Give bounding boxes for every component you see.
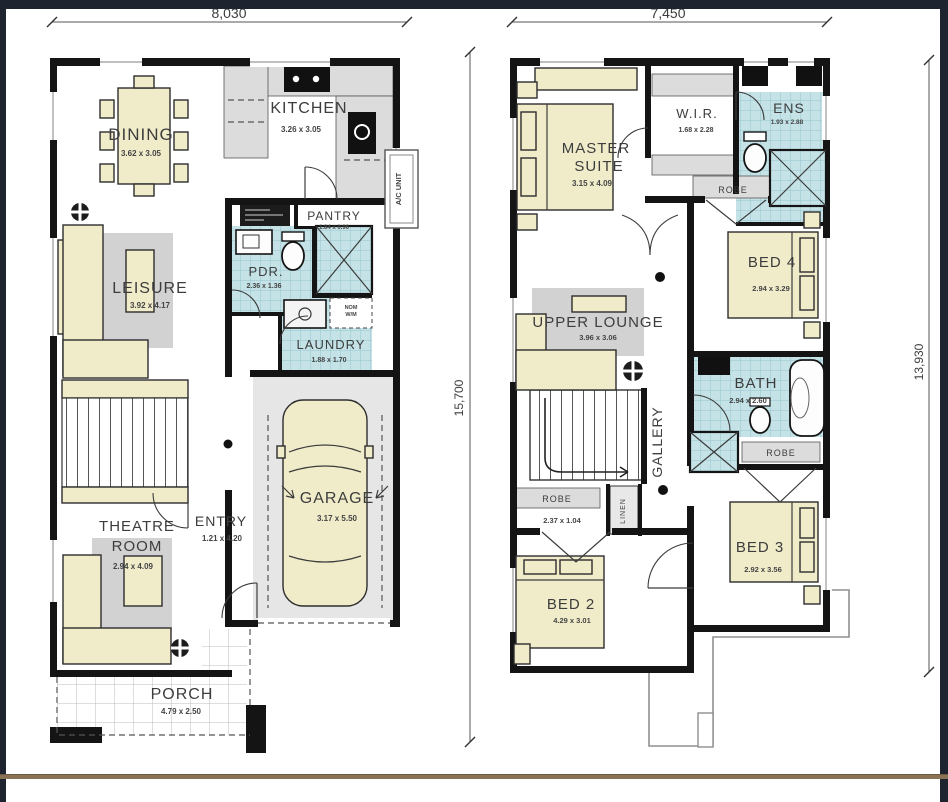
leisure-label: LEISURE bbox=[112, 280, 187, 297]
bath-label: BATH bbox=[735, 375, 778, 392]
linen-label: LINEN bbox=[620, 498, 627, 524]
first-floor-plan: 7,450 15,700 13,930 MASTER SUITE 3.15 x … bbox=[452, 5, 934, 747]
floorplan-page: A/C UNIT 8,030 DINING 3.62 x 3.05 KITCHE… bbox=[0, 0, 948, 802]
dining-label: DINING bbox=[108, 125, 174, 144]
entry-label: ENTRY bbox=[195, 513, 247, 529]
robe-bed3-label: ROBE bbox=[766, 448, 796, 458]
kitchen-label: KITCHEN bbox=[270, 100, 347, 117]
wir-label: W.I.R. bbox=[676, 106, 717, 121]
bed3-dim: 2.92 x 3.56 bbox=[744, 565, 782, 574]
pdr-dim: 2.36 x 1.36 bbox=[246, 283, 281, 290]
master-dresser bbox=[535, 68, 637, 90]
master-dim: 3.15 x 4.09 bbox=[572, 179, 613, 188]
ground-floor-plan: A/C UNIT 8,030 DINING 3.62 x 3.05 KITCHE… bbox=[47, 5, 418, 753]
hall-shelf bbox=[652, 155, 736, 175]
ac-unit: A/C UNIT bbox=[385, 150, 418, 228]
bed3-label: BED 3 bbox=[736, 539, 784, 556]
porch-label: PORCH bbox=[151, 686, 214, 703]
ens-label: ENS bbox=[773, 100, 805, 116]
robe-hall-label: ROBE bbox=[542, 494, 572, 504]
fan-icon bbox=[171, 639, 189, 657]
bed4-label: BED 4 bbox=[748, 254, 796, 271]
gallery-label: GALLERY bbox=[649, 406, 665, 477]
robe-hall-dim: 2.37 x 1.04 bbox=[543, 516, 581, 525]
wm-label-1: NOM bbox=[345, 305, 358, 311]
window-frame-right bbox=[940, 0, 948, 802]
first-dimension-height-right: 13,930 bbox=[912, 55, 934, 677]
window-frame-top bbox=[0, 0, 948, 9]
first-stairs bbox=[530, 390, 642, 480]
wir-dim: 1.68 x 2.28 bbox=[678, 127, 713, 134]
pantry-label: PANTRY bbox=[307, 209, 361, 223]
bed4-dim: 2.94 x 3.29 bbox=[752, 284, 790, 293]
entry-dim: 1.21 x 4.20 bbox=[202, 534, 243, 543]
pdr-vanity bbox=[236, 230, 272, 254]
laundry-label: LAUNDRY bbox=[297, 337, 366, 352]
dim-15700: 15,700 bbox=[452, 379, 466, 416]
robe-bed4-label: ROBE bbox=[718, 185, 748, 195]
bath-toilet bbox=[750, 407, 770, 433]
kitchen-dim: 3.26 x 3.05 bbox=[281, 125, 322, 134]
oven bbox=[348, 112, 376, 154]
ens-toilet bbox=[744, 144, 766, 172]
theatre-label-2: ROOM bbox=[112, 538, 163, 555]
hall-floor bbox=[232, 314, 278, 370]
ground-stairs bbox=[62, 380, 188, 503]
laundry-trough bbox=[284, 300, 326, 328]
ens-dim: 1.93 x 2.88 bbox=[771, 119, 804, 126]
ac-unit-label: A/C UNIT bbox=[394, 172, 403, 205]
porch-dim: 4.79 x 2.50 bbox=[161, 707, 202, 716]
porch-notch-tiles bbox=[202, 629, 247, 677]
cooktop bbox=[284, 66, 330, 92]
upper-lounge-label: UPPER LOUNGE bbox=[532, 314, 663, 331]
garage-dim: 3.17 x 5.50 bbox=[317, 514, 358, 523]
pdr-toilet bbox=[282, 242, 304, 270]
dining-dim: 3.62 x 3.05 bbox=[121, 149, 162, 158]
bed2-dim: 4.29 x 3.01 bbox=[553, 616, 591, 625]
bed2-label: BED 2 bbox=[547, 596, 595, 613]
fan-icon bbox=[623, 361, 643, 381]
pdr-label: PDR. bbox=[248, 264, 283, 279]
downlight-icon bbox=[658, 485, 668, 495]
fan-icon bbox=[71, 203, 89, 221]
leisure-dim: 3.92 x 4.17 bbox=[130, 301, 171, 310]
downlight-icon bbox=[655, 272, 665, 282]
downpipe bbox=[698, 713, 713, 747]
downlight-icon bbox=[224, 440, 233, 449]
bottom-divider-rule bbox=[0, 774, 948, 779]
master-label-2: SUITE bbox=[574, 158, 623, 175]
pantry-dim: 1.84 x 0.96 bbox=[319, 225, 350, 231]
ens-vanity bbox=[796, 66, 822, 86]
ens-vanity bbox=[742, 66, 768, 86]
bath-vanity bbox=[698, 357, 730, 375]
wir-shelf bbox=[652, 74, 734, 96]
first-dimension-height-left: 15,700 bbox=[452, 47, 475, 747]
master-label-1: MASTER bbox=[562, 140, 631, 157]
window-frame-left bbox=[0, 0, 6, 802]
garage-label: GARAGE bbox=[300, 490, 374, 507]
bath-dim: 2.94 x 2.60 bbox=[729, 396, 767, 405]
laundry-dim: 1.88 x 1.70 bbox=[311, 357, 346, 364]
upper-lounge-dim: 3.96 x 3.06 bbox=[579, 333, 617, 342]
lounge-table bbox=[572, 296, 626, 312]
bathtub bbox=[790, 360, 824, 436]
floorplan-drawing: A/C UNIT 8,030 DINING 3.62 x 3.05 KITCHE… bbox=[0, 0, 948, 802]
theatre-dim: 2.94 x 4.09 bbox=[113, 562, 154, 571]
theatre-label-1: THEATRE bbox=[99, 518, 175, 535]
wm-label-2: W/M bbox=[345, 312, 357, 318]
dim-13930: 13,930 bbox=[912, 343, 926, 380]
